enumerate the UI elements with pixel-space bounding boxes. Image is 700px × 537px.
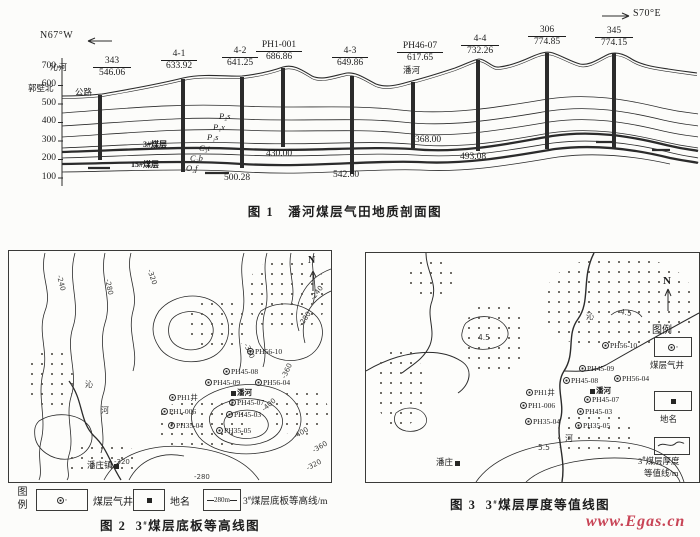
river-label-qinhe: 沁河 [50,61,67,73]
depth-542: 542.60 [333,170,359,180]
river-char: 沁 [85,379,93,390]
well-marker-icon [563,377,570,384]
town-label-panzhuang: 潘庄 [436,456,461,468]
strata-label-c3t: C₃t [199,143,210,153]
figure2-legend-place-box [133,489,165,511]
well-header-343: 343546.06 [93,56,131,80]
place-label-road: 公路 [75,86,92,98]
seam-label-15: 15#煤层 [131,159,159,170]
stipple-area [27,349,73,411]
place-marker-icon [590,389,595,394]
figure2-legend-header: 图例 [13,486,28,514]
direction-label-se: S70°E [633,8,661,19]
contour-label: 5.5 [538,443,550,452]
well-header-ph46-07: PH46-07617.65 [397,41,443,65]
well-header-4-4: 4-4732.26 [461,34,499,58]
figure2-legend-well-label: 煤层气井 [93,493,133,508]
contour-label: -280 [194,473,210,481]
direction-label-nw: N67°W [40,30,73,41]
well-marker-icon [247,348,254,355]
well-header-4-1: 4-1633.92 [161,49,197,73]
axis-tick-100: 100 [34,172,56,182]
well-label: PH56-10 [602,341,637,350]
well-marker-icon [205,379,212,386]
contour-line-icon [230,500,237,501]
well-marker-icon [229,399,236,406]
well-marker-icon [602,342,609,349]
terrain-line [62,52,697,98]
figure3-legend-contour-box [654,437,690,455]
axis-tick-300: 300 [34,135,56,145]
strata-label-c2b: C₂b [190,153,203,163]
well-label: PH1-006 [161,407,196,416]
well-marker-icon [584,396,591,403]
well-marker-icon [525,418,532,425]
figure1-caption: 图 1 潘河煤层气田地质剖面图 [235,201,455,220]
place-label-guobibei: 郭壁北 [28,82,54,94]
depth-500: 500.28 [224,173,250,183]
stipple-area [187,299,249,351]
well-header-4-2: 4-2641.25 [222,46,258,70]
well-label: PH45-03 [226,410,261,419]
contour-label: 4.5 [478,333,490,342]
place-marker-icon [455,461,460,466]
figure3-legend-well-label: 煤层气井 [650,359,684,371]
figure2-legend-well-box: · [36,489,88,511]
place-label-panhe: 潘河 [403,64,420,76]
axis-tick-500: 500 [34,98,56,108]
figure2-caption: 图 2 3#煤层底板等高线图 [100,515,260,534]
figure2-legend-contour-label: 3#煤层底板等高线/m [243,493,328,507]
well-marker-icon [168,422,175,429]
well-label: PH56-10 [247,347,282,356]
well-marker-icon [520,402,527,409]
well-label: PH45-08 [223,367,258,376]
stipple-area [464,303,526,373]
river-char: 沁 [586,311,594,322]
well-label: PH35-04 [525,417,560,426]
figure3-caption: 图 3 3#煤层厚度等值线图 [450,494,610,513]
river-char: 河 [565,433,573,444]
well-label: PH45-09 [205,378,240,387]
seam-label-3: 3#煤层 [143,139,167,150]
axis-tick-400: 400 [34,116,56,126]
well-marker-icon [169,394,176,401]
well-marker-icon [614,375,621,382]
well-marker-icon [575,422,582,429]
place-marker-icon [231,391,236,396]
contour-line-icon [207,500,214,501]
watermark: www.Egas.cn [586,513,685,531]
figure2-north-label: N [308,255,315,266]
strata-label-p1s: P₁s [207,132,218,142]
well-header-345: 345774.15 [595,26,633,50]
paper-figure-page: 700 600 500 400 300 200 100 N67°W S70°E … [0,0,700,537]
figure3-legend-well-box: · [654,337,692,357]
well-marker-icon [668,344,675,351]
well-header-4-3: 4-3649.86 [332,46,368,70]
town-label-panzhuang: 潘庄镇 [87,459,120,471]
well-label: PH35-05 [575,421,610,430]
well-marker-icon [526,389,533,396]
contour-label: 4.5 [619,307,632,318]
place-marker-icon [114,464,119,469]
well-marker-icon [577,408,584,415]
depth-430: 430.00 [266,149,292,159]
figure3-legend-place-label: 地名 [660,413,677,425]
well-marker-icon [226,411,233,418]
figure2-legend-contour-box: 280m [203,489,241,511]
well-marker-icon [161,408,168,415]
well-marker-icon [255,379,262,386]
strata-label-o2f: O₂f [186,163,197,173]
place-marker-icon [147,498,152,503]
well-label: PH45-07 [229,398,264,407]
place-label-panhe: 潘河 [231,387,252,398]
stipple-area [406,258,456,298]
well-label: PH1井 [169,392,198,403]
well-label: PH35-04 [168,421,203,430]
river-char: 河 [101,405,109,416]
well-marker-icon [579,365,586,372]
well-marker-icon [223,368,230,375]
place-marker-icon [671,399,676,404]
depth-368: 368.00 [415,135,441,145]
well-header-306: 306774.85 [528,25,566,49]
well-marker-icon [57,497,64,504]
strata-label-p2s: P₂s [219,111,230,121]
strata-label-p1x: P₁x [213,122,225,132]
axis-tick-200: 200 [34,153,56,163]
figure3-legend-place-box [654,391,692,411]
elevation-axis [58,58,63,186]
figure3-map: N 图例 · 煤层气井 地名 3#煤层厚度 等值线/m 4.5 4.5 5.5 … [365,252,700,483]
well-label: PH35-05 [216,426,251,435]
well-label: PH1-006 [520,401,555,410]
figure3-legend-contour-label1: 3#煤层厚度 [638,455,680,467]
stipple-area [376,348,424,426]
well-label: PH45-07 [584,395,619,404]
well-label: PH56-04 [614,374,649,383]
well-label: PH45-09 [579,364,614,373]
well-label: PH1井 [526,387,555,398]
figure2-legend-place-label: 地名 [170,493,190,508]
depth-493: 493.08 [460,152,486,162]
well-header-ph1-001: PH1-001686.86 [256,40,302,64]
well-label: PH45-08 [563,376,598,385]
figure2-map: N -240 -280 -320 -240 -280 -360 -400 -40… [8,250,332,483]
figure3-legend-header: 图例 [652,321,672,336]
figure3-north-label: N [663,275,671,287]
well-label: PH56-04 [255,378,290,387]
well-marker-icon [216,427,223,434]
well-label: PH45-03 [577,407,612,416]
figure3-legend-contour-label2: 等值线/m [644,467,678,479]
